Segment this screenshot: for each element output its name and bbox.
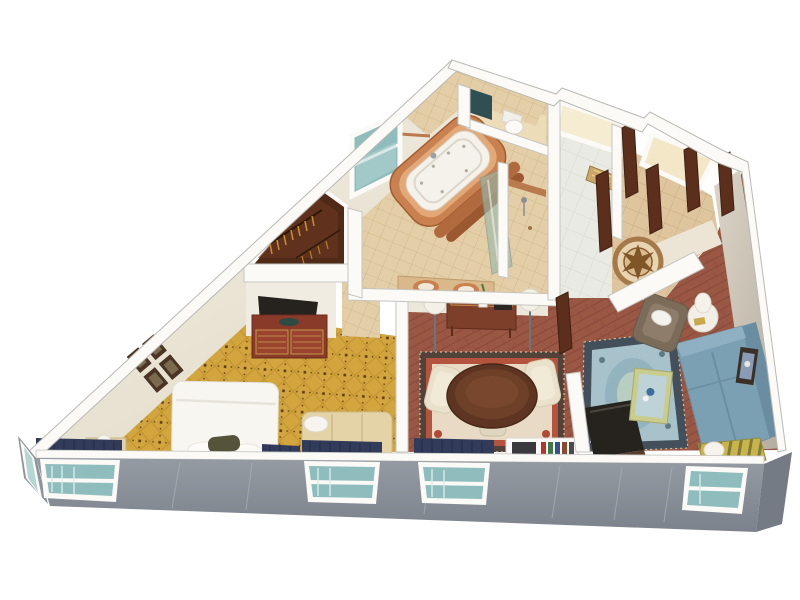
floorplan-render	[0, 0, 800, 600]
wall-shower-west	[498, 162, 508, 278]
window	[418, 462, 490, 505]
walk-in-closet	[250, 186, 346, 266]
wall-bathroom-east	[548, 96, 560, 300]
wall-bathroom-west	[348, 208, 362, 298]
dresser	[252, 296, 327, 358]
window	[304, 461, 380, 504]
wall-bedroom-dining	[396, 296, 408, 452]
coffee-table	[629, 368, 672, 424]
shell-bottom-face	[36, 458, 764, 532]
window	[682, 466, 748, 514]
window	[40, 459, 120, 502]
side-table-lamp	[695, 293, 711, 313]
floorplan-svg	[0, 0, 800, 600]
wall-corridor-east	[612, 124, 622, 240]
wall-wc-west	[458, 84, 470, 128]
wall-closet-front	[244, 264, 348, 282]
shower-stall	[506, 178, 546, 260]
shower-head	[521, 197, 527, 203]
